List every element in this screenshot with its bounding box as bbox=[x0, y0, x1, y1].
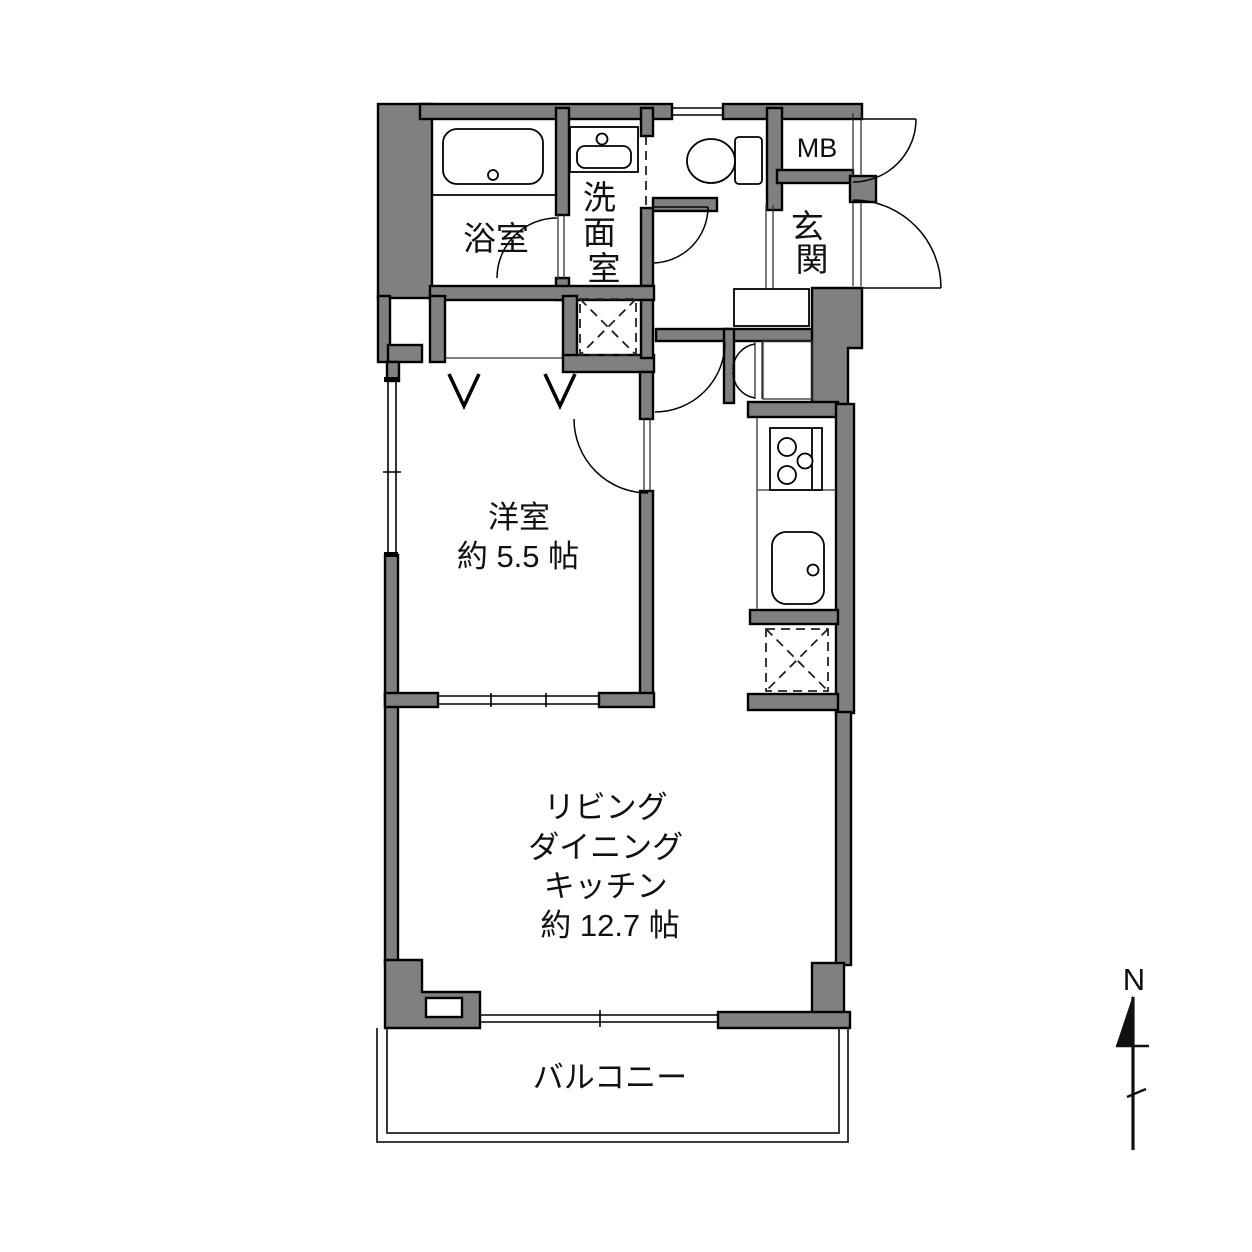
wall-segment bbox=[723, 104, 862, 119]
wall-segment bbox=[563, 296, 577, 358]
room-label-washroom: 洗 面 室 bbox=[583, 179, 625, 287]
mb-door bbox=[853, 119, 916, 182]
wall-segment bbox=[748, 402, 838, 417]
wall-segment bbox=[748, 694, 838, 710]
hall-closet bbox=[763, 341, 812, 399]
wall-segment bbox=[726, 329, 814, 341]
closet-bifold-doors bbox=[733, 341, 762, 399]
wall-segment bbox=[836, 712, 851, 965]
wall-segment bbox=[812, 288, 862, 415]
western-room-door bbox=[574, 418, 650, 493]
wall-segment bbox=[640, 491, 653, 697]
north-label: N bbox=[1123, 962, 1145, 997]
hall-door bbox=[655, 342, 725, 412]
toilet-icon bbox=[687, 137, 762, 184]
wall-segment bbox=[385, 693, 438, 707]
stove-icon bbox=[770, 428, 822, 490]
wall-segment bbox=[388, 345, 422, 362]
wall-segment bbox=[599, 693, 654, 707]
room-label-bath: 浴室 bbox=[463, 220, 529, 257]
north-arrow-tick bbox=[1127, 1089, 1146, 1097]
hanger-pipe-mark bbox=[545, 374, 575, 406]
wall-segment bbox=[556, 108, 569, 215]
toilet-door bbox=[652, 207, 708, 263]
north-arrow-head bbox=[1116, 995, 1133, 1046]
wall-segment bbox=[812, 963, 844, 1014]
wall-segment bbox=[718, 1012, 850, 1028]
wall-segment bbox=[640, 372, 653, 419]
wall-segment bbox=[641, 208, 653, 286]
room-size-western-room: 約 5.5 帖 bbox=[457, 539, 579, 574]
entrance-door bbox=[853, 200, 941, 288]
wall-segment bbox=[420, 104, 672, 119]
floor-plan-drawing: 浴室 洗 面 室 MB 玄 関 洋室 約 5.5 帖 リビング ダイニング キッ… bbox=[0, 0, 1252, 1252]
room-label-balcony: バルコニー bbox=[533, 1060, 687, 1095]
hanger-pipe-mark bbox=[449, 374, 479, 406]
bathtub-icon bbox=[432, 129, 556, 195]
wall-segment bbox=[777, 170, 853, 183]
room-label-western-room: 洋室 bbox=[488, 500, 550, 535]
wall-segment bbox=[641, 108, 653, 136]
kitchen-sink-icon bbox=[772, 532, 824, 604]
wall-segment bbox=[836, 404, 854, 713]
pipe-space-box bbox=[426, 998, 462, 1017]
floor-plan-page: 浴室 洗 面 室 MB 玄 関 洋室 約 5.5 帖 リビング ダイニング キッ… bbox=[0, 0, 1252, 1252]
north-arrow-icon: N bbox=[1116, 962, 1149, 1150]
wall-segment bbox=[767, 108, 782, 210]
wall-segment bbox=[430, 296, 445, 362]
shoe-cabinet bbox=[734, 289, 809, 326]
wall-segment bbox=[430, 286, 654, 300]
wall-segment bbox=[378, 104, 432, 298]
wall-segment bbox=[641, 300, 653, 358]
wall-segment bbox=[385, 555, 398, 698]
wall-segment bbox=[656, 329, 726, 341]
washbasin-icon bbox=[570, 127, 638, 172]
room-label-entrance: 玄 関 bbox=[791, 208, 833, 278]
washer-space-icon bbox=[580, 299, 636, 355]
room-label-ldk: リビング ダイニング キッチン 約 12.7 帖 bbox=[528, 790, 692, 943]
room-label-mb: MB bbox=[797, 133, 838, 163]
wall-segment bbox=[385, 695, 398, 965]
fridge-space-icon bbox=[766, 629, 828, 691]
wall-segment bbox=[750, 610, 838, 624]
